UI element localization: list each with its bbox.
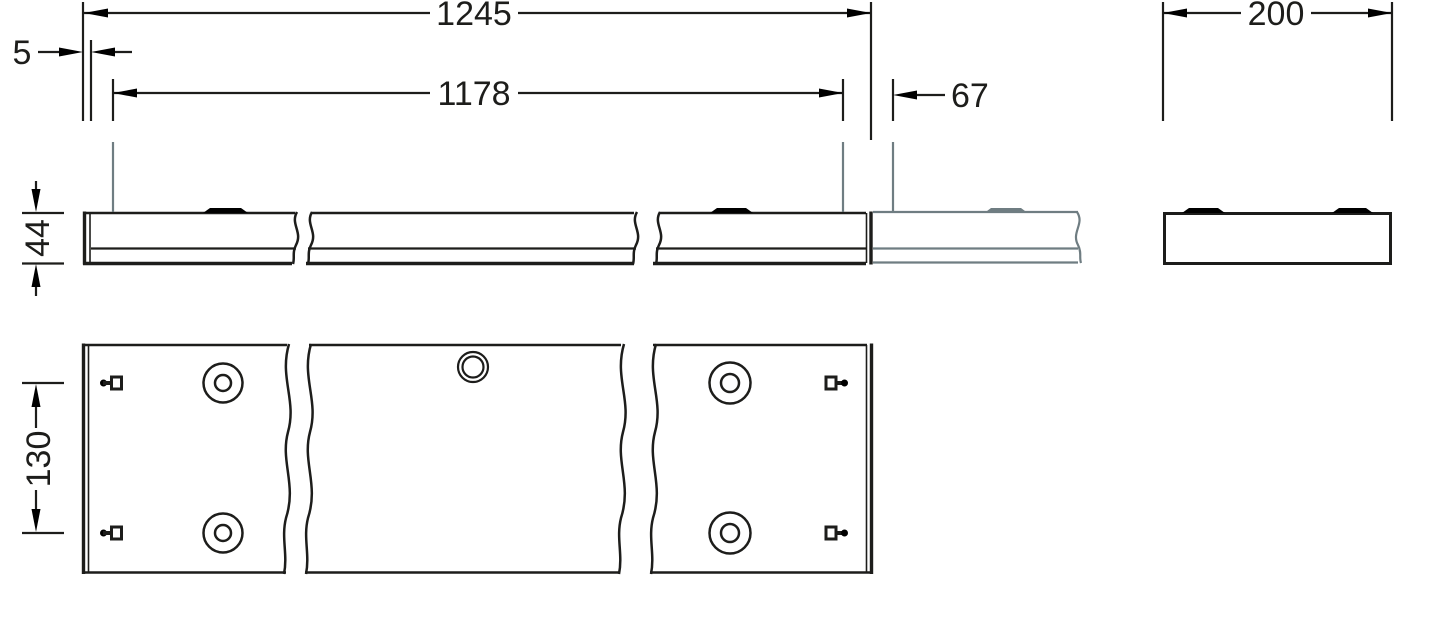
dim-label-67: 67 [951,77,989,115]
keyhole-slot-right-bottom [826,527,848,539]
keyhole-circle [841,380,848,387]
break-line [656,212,661,264]
arrowhead-right-icon [1368,9,1392,18]
connector-lug [203,208,248,213]
keyhole-slot-right-top [826,377,848,389]
keyhole-circle [841,530,848,537]
bottom-view [82,344,873,575]
break-line [306,344,313,574]
arrowhead-left-icon [1163,9,1187,18]
ghost-next-module [873,208,1081,263]
dim-label-5: 5 [13,34,32,72]
mounting-hole-center [215,375,231,391]
connector-lug [985,208,1027,213]
dim-label-200: 200 [1248,0,1305,33]
break-line [651,344,658,574]
arrowhead-down-icon [32,189,41,212]
arrowhead-left-icon [84,9,108,18]
dim-label-130: 130 [20,431,58,488]
housing-outline [1165,214,1391,264]
arrowhead-up-icon [32,264,41,287]
dimension-housing-height: 44 [19,181,64,296]
arrowhead-right-icon [59,48,83,57]
keyhole-body [112,527,122,539]
dim-label-1178: 1178 [437,75,510,113]
dimension-mounting-hole-spacing: 130 [20,383,64,533]
connector-lug [1182,208,1225,213]
arrowhead-left-icon [113,89,137,98]
arrowhead-up-icon [32,384,41,407]
ink-layer: 1245 5 1178 67 [13,0,1392,574]
keyhole-body [826,527,836,539]
drawing-canvas: 1245 5 1178 67 [0,0,1440,643]
wiring-hole-inner [463,357,484,378]
dimension-total-length: 1245 [83,0,871,140]
keyhole-slot-left-bottom [100,527,122,539]
mounting-hole-center [215,525,231,541]
connector-lug [710,208,753,213]
break-line [619,344,626,574]
mounting-hole-center [721,374,739,392]
arrowhead-left-icon [893,91,917,100]
arrowhead-down-icon [32,509,41,532]
mounting-hole-center [721,524,739,542]
end-view [1165,208,1391,264]
dimension-row-joint-offset: 67 [893,77,989,121]
arrowhead-left-icon [91,48,115,57]
mounting-hole [204,514,243,553]
keyhole-slot-left-top [100,377,122,389]
break-line [308,212,313,264]
break-line [293,212,298,264]
dimension-fixing-spacing: 1178 [113,75,843,121]
mounting-hole [710,363,751,404]
keyhole-body [112,377,122,389]
arrowhead-right-icon [847,9,871,18]
break-line [284,344,291,574]
connector-lug [1332,208,1373,213]
ghost-layer [113,142,1081,263]
luminaire-dimension-drawing: 1245 5 1178 67 [0,0,1440,643]
break-line [633,212,638,264]
arrowhead-right-icon [819,89,843,98]
keyhole-body [826,377,836,389]
dimension-housing-width: 200 [1163,0,1392,121]
dim-label-44: 44 [19,219,57,257]
side-view [83,208,871,265]
mounting-hole [710,513,751,554]
dim-label-1245: 1245 [436,0,512,33]
break-line [1076,212,1081,263]
mounting-hole [204,364,243,403]
